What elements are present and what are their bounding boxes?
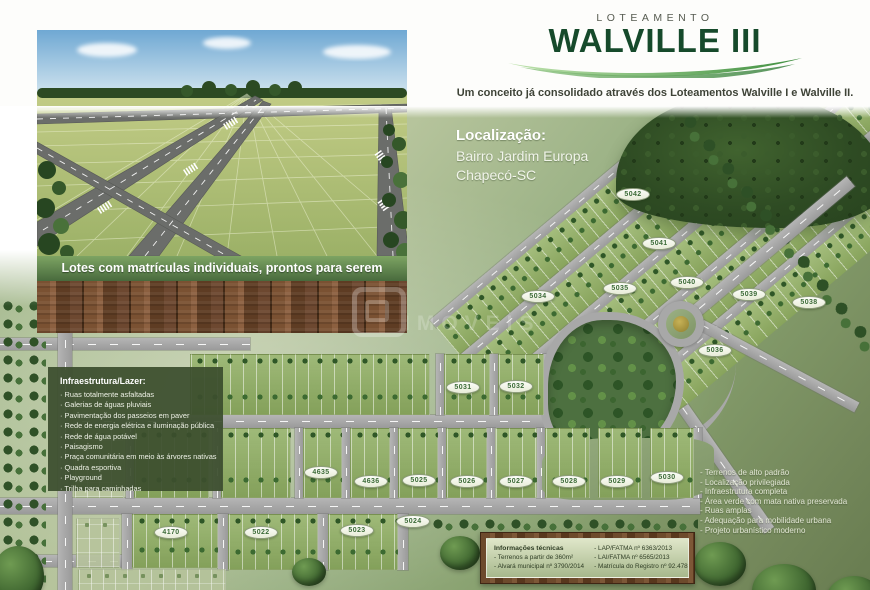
highlight-item: Localização privilegiada bbox=[700, 478, 870, 488]
highlight-item: Ruas amplas bbox=[700, 506, 870, 516]
logo-tagline: Um conceito já consolidado através dos L… bbox=[430, 87, 870, 99]
infrastructure-item: Rede de água potável bbox=[60, 432, 217, 442]
highlight-item: Projeto urbanístico moderno bbox=[700, 526, 870, 536]
location-block: Localização: Bairro Jardim Europa Chapec… bbox=[456, 127, 588, 184]
block-faded-sw bbox=[76, 518, 120, 568]
street-v-bot bbox=[390, 428, 398, 498]
bush bbox=[440, 536, 480, 570]
street-v-bot bbox=[438, 428, 446, 498]
aerial-render bbox=[37, 30, 407, 256]
block-5026 bbox=[446, 428, 487, 498]
block-5023 bbox=[328, 514, 398, 570]
bush bbox=[694, 542, 746, 586]
technical-info-title: Informações técnicas bbox=[494, 544, 584, 553]
brochure-canvas: IMOVEIS 50425041504050395038503550345036… bbox=[0, 0, 870, 590]
street-v-bot bbox=[295, 428, 303, 498]
infrastructure-item: Playground bbox=[60, 473, 217, 483]
block-4636 bbox=[350, 428, 390, 498]
highlight-item: Área verde com mata nativa preservada bbox=[700, 497, 870, 507]
aerial-render-illustration bbox=[37, 30, 407, 256]
infrastructure-panel: Infraestrutura/Lazer: Ruas totalmente as… bbox=[48, 367, 223, 491]
street-h1-main bbox=[0, 498, 700, 514]
technical-info-item: Alvará municipal nº 3790/2014 bbox=[494, 562, 584, 571]
block-mid-large bbox=[190, 354, 430, 415]
street-v-bot bbox=[487, 428, 495, 498]
logo: LOTEAMENTO WALVILLE III Um conceito já c… bbox=[430, 12, 870, 99]
location-heading: Localização: bbox=[456, 127, 588, 144]
tree-row-south bbox=[430, 516, 698, 532]
street-v-bot bbox=[342, 428, 350, 498]
street-v-low bbox=[122, 514, 132, 570]
block-5028 bbox=[545, 428, 590, 498]
technical-info-item: Terrenos a partir de 360m² bbox=[494, 553, 584, 562]
technical-info-box: Informações técnicas Terrenos a partir d… bbox=[480, 532, 695, 584]
infrastructure-item: Ruas totalmente asfaltadas bbox=[60, 390, 217, 400]
logo-title: WALVILLE III bbox=[430, 24, 870, 59]
location-line: Bairro Jardim Europa bbox=[456, 147, 588, 166]
infrastructure-title: Infraestrutura/Lazer: bbox=[60, 376, 217, 386]
infrastructure-item: Pavimentação dos passeios em paver bbox=[60, 411, 217, 421]
technical-info-item: Matrícula do Registro nº 92.478 bbox=[594, 562, 688, 571]
infrastructure-item: Rede de energia elétrica e iluminação pú… bbox=[60, 421, 217, 431]
technical-info-inner: Informações técnicas Terrenos a partir d… bbox=[486, 538, 689, 578]
left-white-margin bbox=[0, 106, 37, 306]
block-faded-s bbox=[78, 569, 226, 590]
block-5031 bbox=[444, 354, 490, 415]
street-v-low bbox=[398, 514, 408, 570]
technical-info-item: LAP/FATMA nº 6363/2013 bbox=[594, 544, 688, 553]
bush bbox=[292, 558, 326, 586]
block-5032 bbox=[498, 354, 544, 415]
block-5030 bbox=[650, 428, 694, 498]
infrastructure-item: Praça comunitária em meio às árvores nat… bbox=[60, 452, 217, 462]
location-line: Chapecó-SC bbox=[456, 166, 588, 185]
render-caption: Lotes com matrículas individuais, pronto… bbox=[37, 256, 407, 281]
block-4635 bbox=[303, 428, 342, 498]
infrastructure-item: Galerias de águas pluviais bbox=[60, 400, 217, 410]
highlight-item: Adequação para mobilidade urbana bbox=[700, 516, 870, 526]
photo-watermark-icon bbox=[352, 287, 406, 337]
street-v-mid bbox=[436, 354, 444, 415]
infrastructure-item: Quadra esportiva bbox=[60, 463, 217, 473]
technical-info-item: LAI/FATMA nº 6565/2013 bbox=[594, 553, 688, 562]
block-5027 bbox=[495, 428, 537, 498]
highlight-item: Terrenos de alto padrão bbox=[700, 468, 870, 478]
highlights-list: Terrenos de alto padrãoLocalização privi… bbox=[700, 468, 870, 535]
block-plain bbox=[221, 428, 291, 498]
highlight-item: Infraestrutura completa bbox=[700, 487, 870, 497]
photo-watermark-text: IMOVEIS bbox=[404, 312, 541, 336]
block-5025 bbox=[398, 428, 438, 498]
block-4170 bbox=[132, 514, 218, 568]
street-v-low bbox=[218, 514, 228, 570]
infrastructure-list: Ruas totalmente asfaltadasGalerias de ág… bbox=[60, 390, 217, 494]
infrastructure-item: Trilha para caminhadas bbox=[60, 484, 217, 494]
technical-info-left-list: Terrenos a partir de 360m²Alvará municip… bbox=[494, 553, 584, 571]
block-5029 bbox=[598, 428, 642, 498]
street-v-mid bbox=[490, 354, 498, 415]
technical-info-left-column: Informações técnicas Terrenos a partir d… bbox=[494, 544, 584, 572]
technical-info-right-list: LAP/FATMA nº 6363/2013LAI/FATMA nº 6565/… bbox=[594, 544, 688, 571]
technical-info-right-column: LAP/FATMA nº 6363/2013LAI/FATMA nº 6565/… bbox=[594, 544, 688, 572]
infrastructure-item: Paisagismo bbox=[60, 442, 217, 452]
roundabout bbox=[658, 301, 704, 347]
